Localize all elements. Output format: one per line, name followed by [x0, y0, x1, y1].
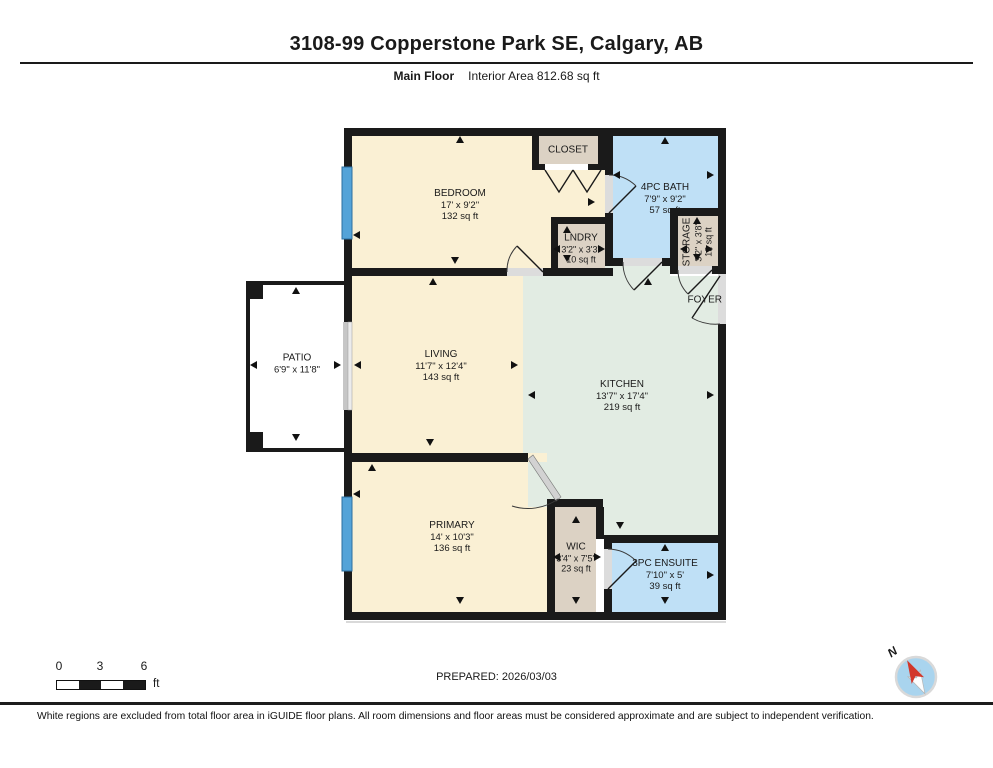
dimension-arrow-icon [354, 361, 361, 369]
room-name: 4PC BATH [641, 182, 689, 194]
room-area: 39 sq ft [632, 581, 698, 593]
room-dimensions: 13'7" x 17'4" [596, 390, 648, 402]
dimension-arrow-icon [588, 198, 595, 206]
patio-post [247, 432, 263, 448]
room-dimensions: 14' x 10'3" [429, 531, 474, 543]
dimension-arrow-icon [613, 171, 620, 179]
dimension-arrow-icon [250, 361, 257, 369]
room-label-kitchen: KITCHEN 13'7" x 17'4" 219 sq ft [596, 379, 648, 414]
dimension-arrow-icon [426, 439, 434, 446]
room-area: 23 sq ft [556, 563, 595, 574]
room-label-bedroom: BEDROOM 17' x 9'2" 132 sq ft [434, 188, 486, 223]
dimension-arrow-icon [707, 571, 714, 579]
room-name: PRIMARY [429, 520, 474, 532]
dimension-arrow-icon [707, 171, 714, 179]
room-area: 132 sq ft [434, 211, 486, 223]
room-label-ensuite: 3PC ENSUITE 7'10" x 5' 39 sq ft [632, 558, 698, 593]
room-label-primary: PRIMARY 14' x 10'3" 136 sq ft [429, 520, 474, 555]
dimension-arrow-icon [707, 391, 714, 399]
dimension-arrow-icon [693, 254, 701, 261]
dimension-arrow-icon [429, 278, 437, 285]
room-dimensions: 7'9" x 9'2" [641, 193, 689, 205]
dimension-arrow-icon [563, 255, 571, 262]
kitchen-area-nook [604, 507, 718, 535]
floor-plan: BEDROOM 17' x 9'2" 132 sq ft CLOSET 4PC … [0, 0, 993, 768]
room-dimensions: 7'10" x 5' [632, 569, 698, 581]
compass-circle [896, 657, 936, 697]
patio-post [247, 283, 263, 299]
dimension-arrow-icon [661, 597, 669, 604]
room-dimensions: 11'7" x 12'4" [415, 360, 466, 372]
dimension-arrow-icon [368, 464, 376, 471]
dimension-arrow-icon [572, 516, 580, 523]
sliding-door [343, 322, 352, 410]
room-name: PATIO [274, 353, 320, 365]
dimension-arrow-icon [451, 257, 459, 264]
room-name: LNDRY [561, 233, 600, 244]
dimension-arrow-icon [594, 553, 601, 561]
dimension-arrow-icon [456, 597, 464, 604]
room-name: LIVING [415, 349, 466, 361]
room-name: STORAGE [682, 218, 693, 267]
dimension-arrow-icon [456, 136, 464, 143]
room-label-closet: CLOSET [548, 144, 588, 156]
room-label-living: LIVING 11'7" x 12'4" 143 sq ft [415, 349, 466, 384]
room-name: 3PC ENSUITE [632, 558, 698, 570]
dimension-arrow-icon [334, 361, 341, 369]
dimension-arrow-icon [292, 287, 300, 294]
dimension-arrow-icon [353, 231, 360, 239]
bedroom-window [342, 167, 352, 239]
room-dimensions: 17' x 9'2" [434, 199, 486, 211]
dimension-arrow-icon [528, 391, 535, 399]
room-dimensions: 3'4" x 7'5" [556, 553, 595, 564]
room-label-patio: PATIO 6'9" x 11'8" [274, 353, 320, 376]
dimension-arrow-icon [661, 544, 669, 551]
room-area: 219 sq ft [596, 402, 648, 414]
prepared-date: PREPARED: 2026/03/03 [0, 671, 993, 683]
room-label-bath: 4PC BATH 7'9" x 9'2" 57 sq ft [641, 182, 689, 217]
dimension-arrow-icon [616, 522, 624, 529]
room-name: KITCHEN [596, 379, 648, 391]
room-dimensions: 3'2" x 3'3" [561, 244, 600, 255]
dimension-arrow-icon [661, 137, 669, 144]
footer-divider [0, 702, 993, 705]
dimension-arrow-icon [680, 245, 687, 253]
dimension-arrow-icon [598, 245, 605, 253]
primary-window [342, 497, 352, 571]
dimension-arrow-icon [292, 434, 300, 441]
compass-icon [893, 655, 941, 701]
foyer-area [605, 266, 670, 276]
dimension-arrow-icon [706, 245, 713, 253]
dimension-arrow-icon [644, 278, 652, 285]
dimension-arrow-icon [353, 490, 360, 498]
room-dimensions: 6'9" x 11'8" [274, 364, 320, 376]
floor-plan-drawing [0, 0, 993, 768]
dimension-arrow-icon [563, 226, 571, 233]
room-label-foyer: FOYER [688, 294, 722, 306]
room-name: CLOSET [548, 144, 588, 156]
room-name: WIC [556, 542, 595, 553]
dimension-arrow-icon [511, 361, 518, 369]
room-area: 12 sq ft [703, 218, 714, 267]
dimension-arrow-icon [553, 245, 560, 253]
dimension-arrow-icon [553, 553, 560, 561]
dimension-arrow-icon [572, 597, 580, 604]
room-label-wic: WIC 3'4" x 7'5" 23 sq ft [556, 542, 595, 574]
room-area: 136 sq ft [429, 543, 474, 555]
room-name: FOYER [688, 294, 722, 306]
dimension-arrow-icon [693, 217, 701, 224]
floorplan-page: 3108-99 Copperstone Park SE, Calgary, AB… [0, 0, 993, 768]
disclaimer-text: White regions are excluded from total fl… [37, 711, 874, 722]
room-area: 143 sq ft [415, 372, 466, 384]
room-name: BEDROOM [434, 188, 486, 200]
room-area: 57 sq ft [641, 205, 689, 217]
